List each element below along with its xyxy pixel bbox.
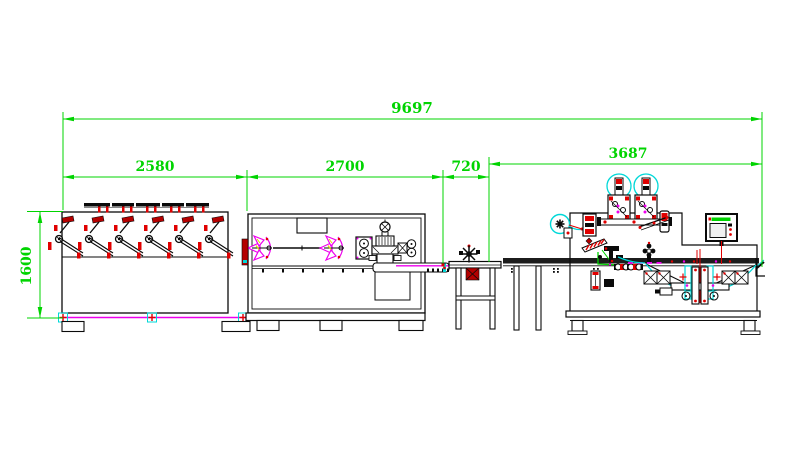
machine-leg	[572, 321, 583, 332]
machine-foot	[62, 322, 84, 332]
dim-label-height: 1600	[19, 246, 35, 285]
machine-foot	[399, 321, 423, 331]
dim-label-unwinder: 2580	[136, 159, 175, 175]
top-hatch	[297, 218, 327, 233]
film-roll-tower	[607, 174, 631, 224]
cad-drawing-canvas: 9697 2580 2700 720 3687 1600	[0, 0, 800, 450]
hmi-button	[729, 233, 732, 236]
conveyor-leg	[536, 266, 541, 330]
hmi-button	[729, 228, 732, 231]
unwinder-machine	[48, 203, 250, 332]
hmi-panel	[706, 214, 737, 264]
machine-foot	[320, 321, 342, 331]
machine-foot	[222, 322, 250, 332]
machine-line-elevation-drawing: 9697 2580 2700 720 3687 1600	[0, 0, 800, 450]
hmi-status-bar	[712, 218, 731, 222]
dim-label-forming: 2700	[326, 159, 365, 175]
dim-label-overall: 9697	[391, 99, 433, 117]
conveyor-leg	[514, 266, 519, 330]
hmi-power-led	[709, 218, 712, 221]
hanging-guide	[591, 271, 614, 290]
machine-leg	[744, 321, 755, 332]
top-rail	[84, 203, 209, 213]
hmi-screen	[710, 224, 726, 238]
film-roll-tower	[634, 174, 658, 224]
dim-label-transfer: 720	[451, 159, 480, 175]
dim-label-packaging: 3687	[609, 146, 648, 162]
tension-roller-unit	[583, 214, 596, 244]
packaging-machine	[551, 174, 761, 335]
machine-foot	[257, 321, 279, 331]
